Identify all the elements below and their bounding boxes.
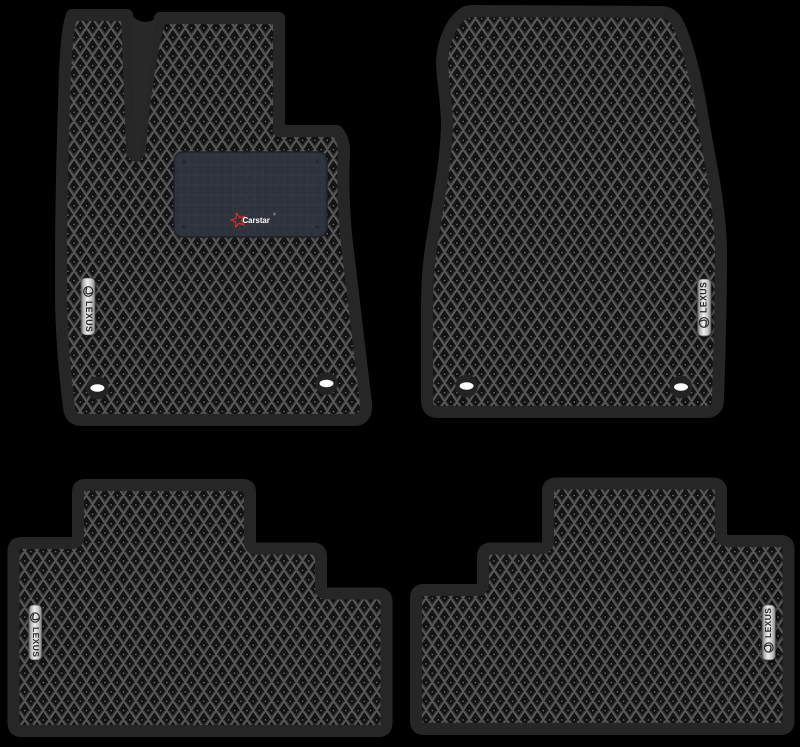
svg-text:LEXUS: LEXUS (31, 627, 41, 657)
svg-text:LEXUS: LEXUS (763, 608, 773, 638)
svg-text:Carstar: Carstar (243, 216, 270, 225)
svg-text:LEXUS: LEXUS (84, 301, 94, 332)
svg-text:®: ® (273, 212, 276, 217)
svg-text:LEXUS: LEXUS (698, 282, 708, 313)
